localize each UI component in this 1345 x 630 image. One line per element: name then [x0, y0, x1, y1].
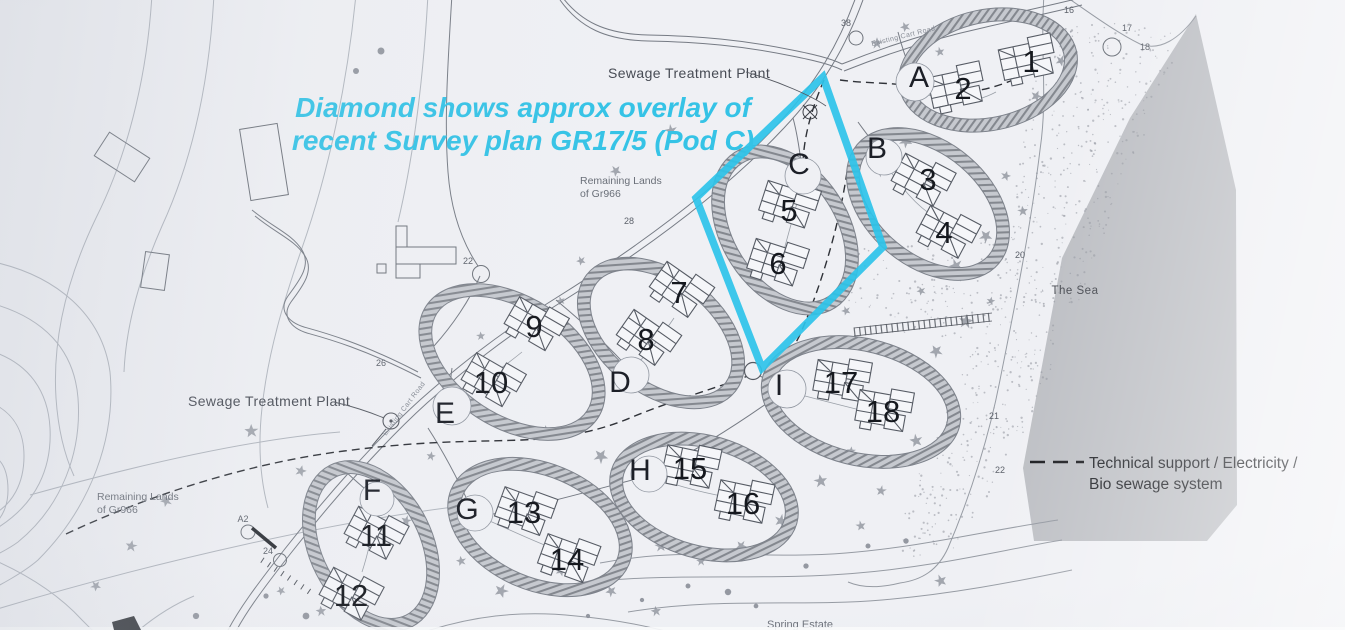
pod-letter: D	[609, 366, 631, 399]
pod-letter: A	[909, 61, 929, 94]
legend-line1: Technical support / Electricity /	[1089, 455, 1298, 472]
road-marker: 22	[995, 465, 1005, 475]
pod-letter: I	[775, 369, 783, 402]
annotation-line2: recent Survey plan GR17/5 (Pod C)	[292, 125, 754, 156]
pod-letter: G	[455, 493, 478, 526]
road-marker: 18	[1140, 42, 1150, 52]
svg-text:Remaining Lands: Remaining Lands	[580, 175, 662, 187]
sea-label: The Sea	[1052, 285, 1099, 297]
pod-I-entrance	[768, 370, 806, 408]
legend-line2: Bio sewage system	[1089, 476, 1223, 493]
pod-letter: F	[363, 474, 381, 507]
road-marker: 20	[1015, 250, 1025, 260]
house-number: 9	[525, 309, 542, 344]
house-number: 18	[866, 394, 900, 429]
house-number: 3	[919, 162, 936, 197]
road-marker: 26	[376, 358, 386, 368]
house-number: 11	[360, 518, 392, 553]
house-number: 16	[726, 486, 760, 521]
annotation-line1: Diamond shows approx overlay of	[295, 92, 754, 123]
house-number: 6	[769, 246, 786, 281]
road-marker: 22	[463, 256, 473, 266]
house-number: 10	[474, 365, 508, 400]
house-number: 13	[507, 495, 541, 530]
house-number: 1	[1022, 44, 1039, 79]
svg-text:of Gr966: of Gr966	[580, 188, 621, 200]
house-number: 12	[334, 578, 368, 613]
road-marker: 38	[841, 18, 851, 28]
pod-letter: C	[788, 148, 810, 181]
house-number: 5	[780, 193, 797, 228]
road-marker: 28	[624, 216, 634, 226]
house-number: 8	[637, 322, 654, 357]
road-marker: A2	[237, 514, 248, 524]
sewage-plant-left-label: Sewage Treatment Plant	[188, 393, 350, 409]
house-number: 17	[824, 365, 858, 400]
pod-letter: H	[629, 454, 651, 487]
road-marker: 21	[989, 411, 999, 421]
road-marker: 16	[1064, 5, 1074, 15]
house-number: 2	[954, 71, 971, 106]
road-marker: 17	[1122, 23, 1132, 33]
svg-text:of Gr966: of Gr966	[97, 504, 138, 516]
site-plan: The Sea	[0, 0, 1345, 630]
house-number: 7	[670, 275, 687, 310]
house-number: 15	[673, 451, 707, 486]
svg-text:Remaining Lands: Remaining Lands	[97, 491, 179, 503]
house-number: 14	[550, 542, 584, 577]
pod-letter: B	[867, 132, 887, 165]
house-number: 4	[935, 215, 952, 250]
sewage-plant-top-label: Sewage Treatment Plant	[608, 65, 770, 81]
road-marker: 24	[263, 546, 273, 556]
pod-letter: E	[435, 397, 455, 430]
